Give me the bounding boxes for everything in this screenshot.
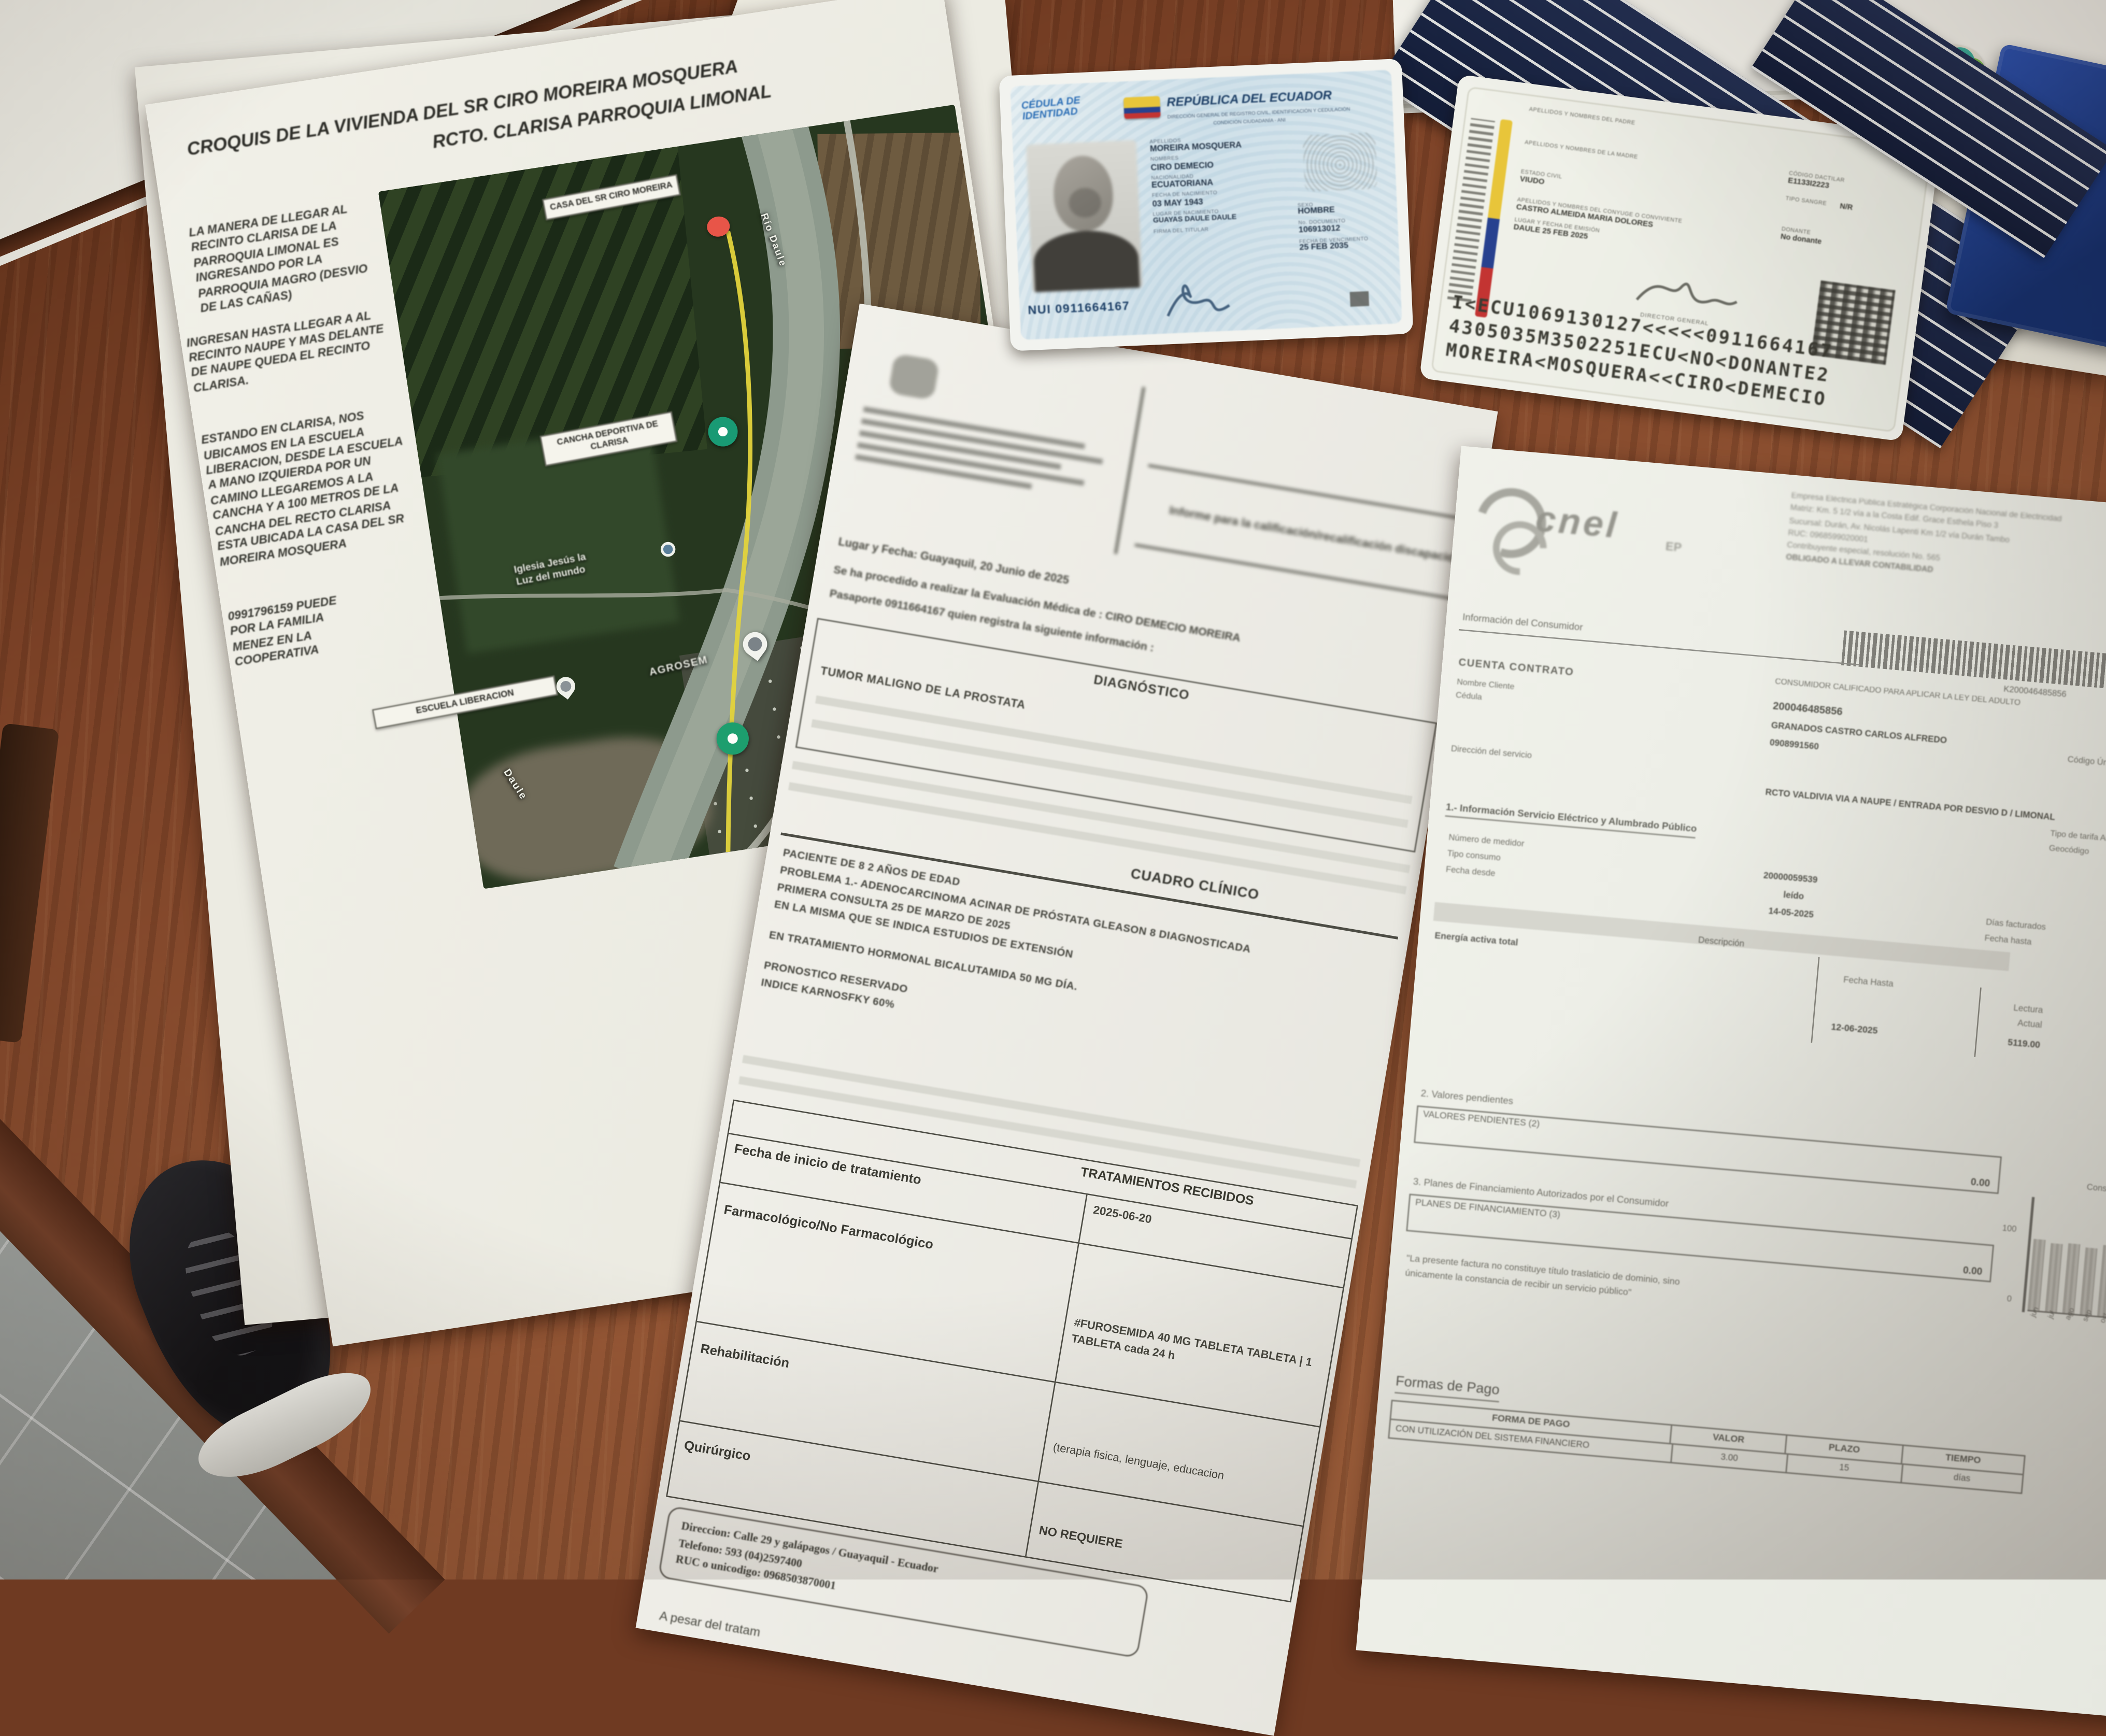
col-lectura-1: Lectura xyxy=(2013,1004,2043,1016)
id-card-front: CÉDULA DE IDENTIDAD REPÚBLICA DEL ECUADO… xyxy=(999,59,1413,351)
descripcion-band: Descripción xyxy=(1433,902,2010,971)
geocodigo-label: Geocódigo xyxy=(2048,844,2089,857)
id-fields-right: SEXO HOMBRE No. DOCUMENTO 106913012 FECH… xyxy=(1298,198,1397,253)
direccion-label: Dirección del servicio xyxy=(1450,744,1532,761)
valores-box: VALORES PENDIENTES (2) 0.00 xyxy=(1414,1105,2002,1194)
croquis-paragraph: LA MANERA DE LLEGAR AL RECINTO CLARISA D… xyxy=(188,197,390,317)
table-vline xyxy=(1974,988,1982,1058)
tipo-label: Tipo consumo xyxy=(1447,849,1501,863)
col-fecha-hasta: Fecha Hasta xyxy=(1843,975,1894,989)
field-label: FIRMA DEL TITULAR xyxy=(1154,223,1293,235)
back-left-fields: APELLIDOS Y NOMBRES DEL PADRE APELLIDOS … xyxy=(1513,107,1796,267)
form-stripe xyxy=(811,719,1408,828)
desde-label: Fecha desde xyxy=(1445,865,1496,879)
diagnostico-header: DIAGNÓSTICO xyxy=(1092,673,1190,704)
id-photo xyxy=(1026,140,1143,292)
tarifa-label: Tipo de tarifa Arconel xyxy=(2050,829,2106,845)
table-vline xyxy=(1811,957,1820,1043)
rule xyxy=(1459,629,1860,666)
chart-bar xyxy=(2080,1248,2097,1316)
cedula-value: 0908991560 xyxy=(1769,738,1819,752)
id-front-card-face: CÉDULA DE IDENTIDAD REPÚBLICA DEL ECUADO… xyxy=(1010,70,1402,340)
chart-bar xyxy=(2028,1239,2046,1311)
planes-box-value: 0.00 xyxy=(1962,1264,1983,1277)
pay-table: FORMA DE PAGO VALOR PLAZO TIEMPO CON UTI… xyxy=(1388,1400,2025,1494)
field-label: APELLIDOS Y NOMBRES DE LA MADRE xyxy=(1525,139,1791,181)
col-lectura-2: Actual xyxy=(2017,1019,2042,1031)
formas-pago-header: Formas de Pago xyxy=(1394,1373,1500,1402)
id-country: REPÚBLICA DEL ECUADOR xyxy=(1166,86,1388,109)
consumption-chart: Consumo 100 0 jun jul ago sep oct nov di… xyxy=(1991,1176,2106,1368)
bill-quote: "La presente factura no constituye títul… xyxy=(1404,1253,1721,1309)
chart-bar xyxy=(2045,1243,2063,1313)
chart-ymax: 100 xyxy=(2002,1224,2017,1234)
field-value: N/R xyxy=(1839,204,1853,214)
field-value: HOMBRE xyxy=(1298,205,1394,218)
desk-leg xyxy=(0,723,59,1043)
hospital-logo-icon xyxy=(888,353,940,400)
cuadro-clinico-text: PACIENTE DE 8 2 AÑOS DE EDAD PROBLEMA 1.… xyxy=(760,844,1404,1096)
field-value: 25 FEB 2035 xyxy=(1299,240,1396,254)
id-back-card-face: APELLIDOS Y NOMBRES DEL PADRE APELLIDOS … xyxy=(1431,87,1932,433)
chart-title: Consumo xyxy=(2086,1183,2106,1202)
cnel-logo-text: cnel xyxy=(1534,499,1620,547)
cuenta-value: 200046485856 xyxy=(1772,700,1843,718)
codigo-unico-label: Código Único xyxy=(2067,755,2106,769)
back-right-fields: CÓDIGO DACTILAR E1133I2223 TIPO SANGRE N… xyxy=(1780,170,1923,259)
valores-box-value: 0.00 xyxy=(1970,1175,1990,1189)
calificado-note: CONSUMIDOR CALIFICADO PARA APLICAR LA LE… xyxy=(1775,678,2106,727)
cnel-bill: cnel EP Empresa Eléctrica Pública Estrat… xyxy=(1356,446,2106,1720)
fecha-hasta-value: 12-06-2025 xyxy=(1831,1023,1878,1036)
id-icon-square xyxy=(1350,291,1369,307)
medidor-label: Número de medidor xyxy=(1448,833,1525,849)
desde-value: 14-05-2025 xyxy=(1768,907,1814,920)
photo-scene: CROQUIS DE LA VIVIENDA DEL SR CIRO MOREI… xyxy=(0,0,2106,1580)
lectura-actual-value: 5119.00 xyxy=(2007,1038,2040,1051)
cuadro-clinico-header: CUADRO CLÍNICO xyxy=(1130,867,1260,904)
id-doc-type: CÉDULA DE IDENTIDAD xyxy=(1021,95,1082,123)
medidor-value: 20000059539 xyxy=(1763,872,1818,886)
descripcion-label: Descripción xyxy=(1698,936,1745,949)
id-nui: NUI 0911664167 xyxy=(1028,299,1130,317)
medical-header-titlebox: Informe para la calificación/recalificac… xyxy=(1134,464,1474,602)
planes-box-label: PLANES DE FINANCIAMIENTO (3) xyxy=(1415,1198,1560,1220)
sec-consumidor: Información del Consumidor xyxy=(1462,610,1583,633)
barcode-number: K200046485856 xyxy=(2003,685,2067,700)
cuenta-label: CUENTA CONTRATO xyxy=(1458,656,1575,678)
cnel-logo: cnel EP xyxy=(1472,482,1747,600)
medical-header-title: Informe para la calificación/recalificac… xyxy=(1140,497,1469,568)
id-photo-shirt xyxy=(1033,229,1140,292)
croquis-paragraph: INGRESAN HASTA LLEGAR A AL RECINTO NAUPE… xyxy=(186,304,402,396)
energia-row-label: Energía activa total xyxy=(1434,932,1519,948)
hasta-label: Fecha hasta xyxy=(1984,934,2032,947)
chart-bar xyxy=(2062,1243,2081,1314)
chart-bar xyxy=(2097,1245,2106,1317)
medical-header: Informe para la calificación/recalificac… xyxy=(833,339,1484,614)
tipo-value: leído xyxy=(1783,891,1804,902)
id-fingerprint-icon xyxy=(1303,132,1378,192)
ecuador-flag-icon xyxy=(1123,96,1161,119)
croquis-paragraph: ESTANDO EN CLARISA, NOS UBICAMOS EN LA E… xyxy=(200,402,428,570)
cnel-logo-sub: EP xyxy=(1665,539,1682,554)
sec1-header: 1.- Información Servicio Eléctrico y Alu… xyxy=(1445,801,1698,838)
sec2-header: 2. Valores pendientes xyxy=(1420,1087,1514,1107)
cedula-label: Cédula xyxy=(1455,691,1482,703)
id-fields: APELLIDOS MOREIRA MOSQUERA NOMBRES CIRO … xyxy=(1149,133,1293,235)
chart-ymin: 0 xyxy=(2007,1294,2012,1304)
chart-x-labels: jun jul ago sep oct nov dic xyxy=(2024,1315,2106,1365)
nombre-label: Nombre Cliente xyxy=(1456,677,1515,692)
hospital-name-lines xyxy=(854,400,1117,509)
dias-label: Días facturados xyxy=(1985,918,2046,932)
medical-bottom-text: A pesar del tratam xyxy=(658,1607,761,1639)
field-label: TIPO SANGRE xyxy=(1785,196,1827,210)
valores-box-label: VALORES PENDIENTES (2) xyxy=(1422,1110,1540,1130)
signature-icon xyxy=(1147,266,1271,328)
cnel-company-block: Empresa Eléctrica Pública Estratégica Co… xyxy=(1785,491,2106,606)
